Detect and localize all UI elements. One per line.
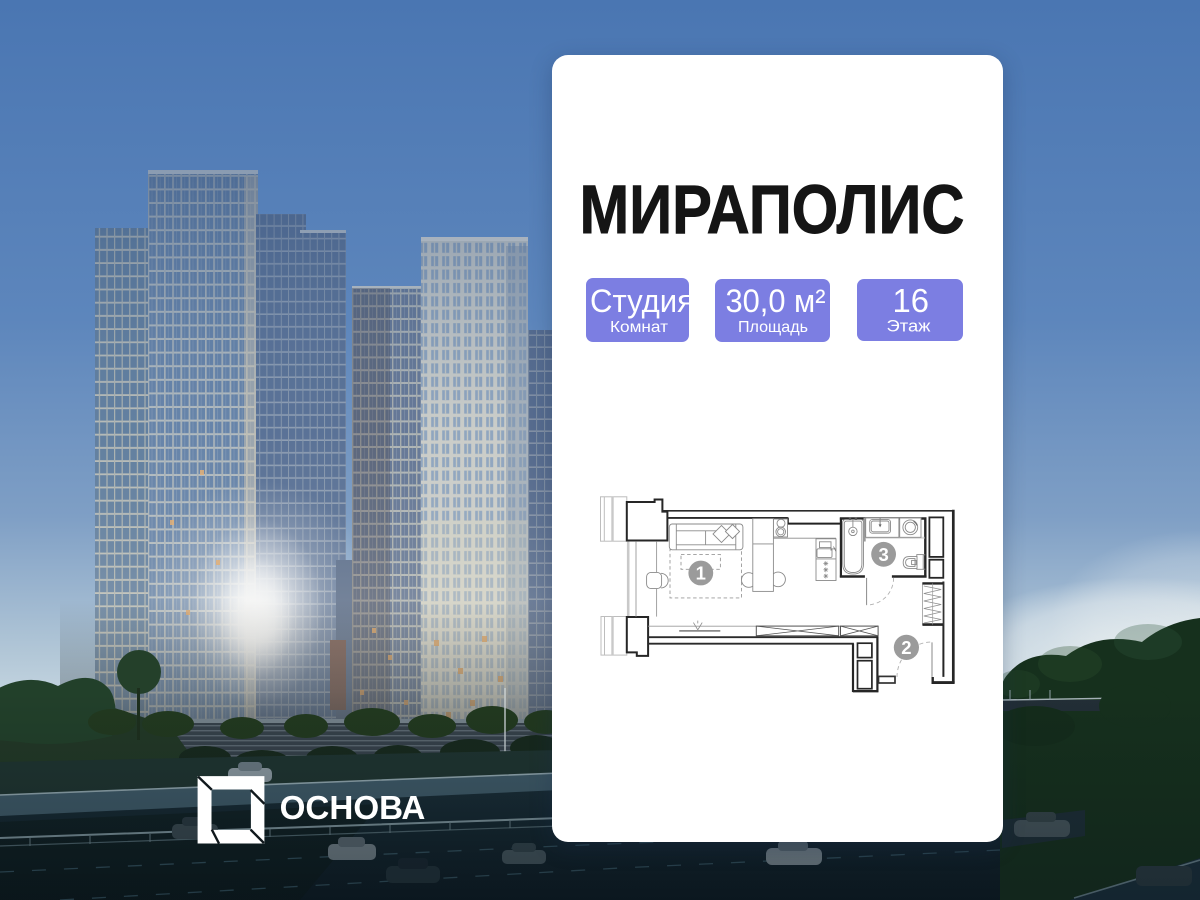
svg-text:МИРАПОЛИС: МИРАПОЛИС — [580, 171, 965, 248]
svg-text:Комнат: Комнат — [610, 319, 669, 336]
svg-text:Студия: Студия — [590, 283, 694, 319]
svg-text:Площадь: Площадь — [738, 319, 808, 336]
svg-text:30,0 м²: 30,0 м² — [726, 283, 826, 319]
svg-text:ОСНОВА: ОСНОВА — [280, 790, 426, 827]
svg-text:2: 2 — [901, 637, 911, 658]
svg-text:1: 1 — [696, 563, 706, 584]
svg-text:Этаж: Этаж — [887, 318, 931, 336]
svg-text:3: 3 — [878, 544, 888, 565]
svg-text:16: 16 — [893, 282, 930, 319]
